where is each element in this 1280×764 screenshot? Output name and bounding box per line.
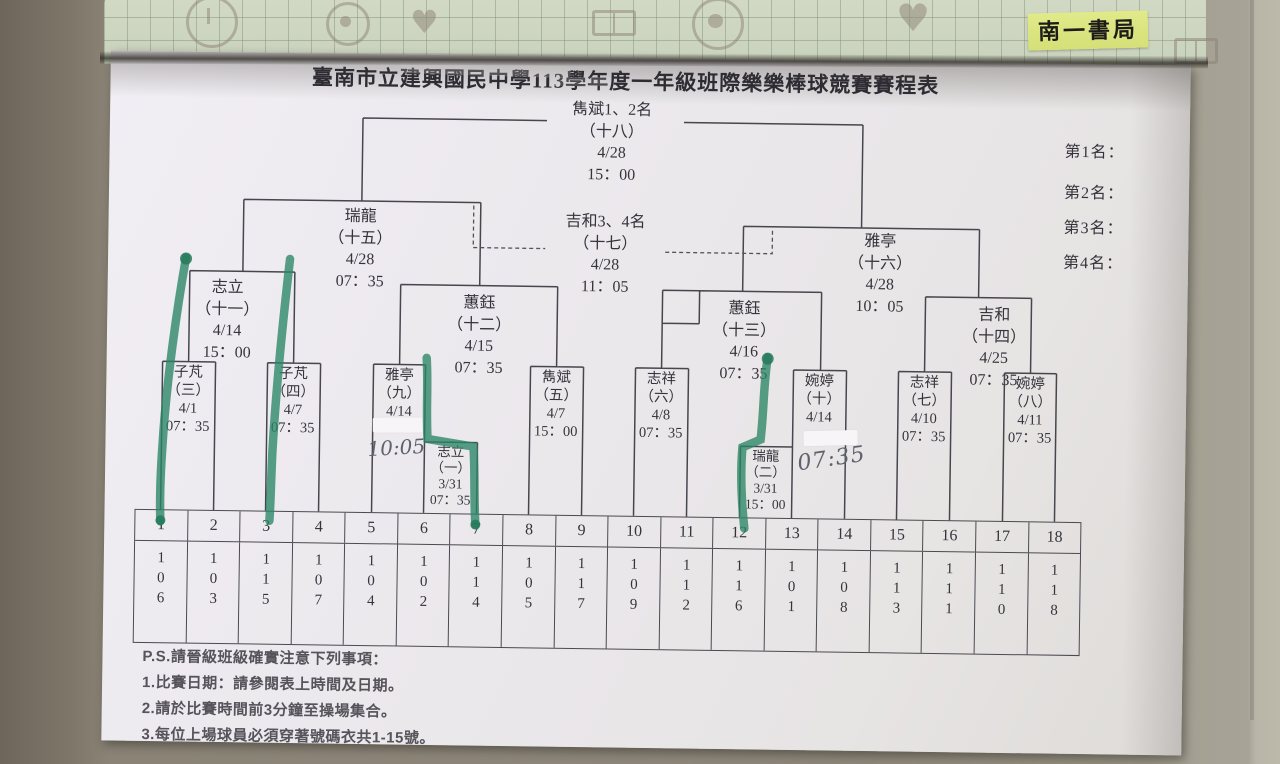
match-time: 07：35 [248, 418, 338, 437]
class-cell: 113 [869, 551, 923, 653]
class-number: 106 [151, 550, 169, 610]
match-time: 15：00 [546, 163, 676, 186]
position-cell: 17 [976, 522, 1029, 553]
position-cell: 11 [661, 517, 714, 548]
whiteout-patch [373, 417, 423, 432]
schedule-paper: 臺南市立建興國民中學113學年度一年級班際樂樂棒球競賽賽程表 雋斌1、2名 （十… [101, 50, 1191, 755]
class-cell: 118 [1027, 553, 1080, 655]
match-date: 4/10 [879, 409, 969, 428]
match-time: 11：05 [545, 275, 665, 298]
team-name: 雋斌 [511, 368, 601, 387]
match-g8: 婉婷 （八） 4/11 07：35 [984, 375, 1075, 448]
match-time: 10：05 [824, 295, 934, 318]
team-name: 雋斌1、2名 [547, 99, 677, 122]
class-cell: 103 [186, 542, 240, 644]
class-cell: 116 [712, 549, 766, 651]
match-sf-left: 瑞龍 （十五） 4/28 07：35 [305, 205, 416, 293]
match-g2: 瑞龍 （二） 3/31 15：00 [723, 448, 809, 513]
match-g7: 志祥 （七） 4/10 07：35 [879, 373, 970, 446]
team-name: 瑞龍 [306, 205, 416, 228]
team-name: 蕙鈺 [694, 298, 794, 321]
class-number: 110 [992, 562, 1010, 622]
match-no: （五） [511, 386, 601, 405]
class-number: 104 [362, 553, 380, 613]
match-time: 07：35 [305, 270, 415, 293]
match-date: 4/28 [825, 273, 935, 296]
match-no: （十七） [545, 232, 665, 255]
position-cell: 4 [293, 512, 346, 543]
match-qf11: 志立 （十一） 4/14 15：00 [177, 276, 278, 363]
position-cell: 18 [1029, 522, 1081, 553]
position-cell: 5 [345, 513, 398, 544]
wall-corner-line [1250, 0, 1254, 720]
match-third-place: 吉和3、4名 （十七） 4/28 11：05 [545, 211, 666, 299]
position-cell: 16 [923, 521, 976, 552]
match-time: 07：35 [616, 424, 706, 443]
notes-block: P.S.請晉級班級確實注意下列事項： 1.比賽日期：請參閱表上時間及日期。 2.… [141, 645, 436, 753]
match-no: （十四） [944, 326, 1044, 349]
position-cell: 12 [713, 518, 766, 549]
position-cell: 13 [766, 519, 819, 550]
class-cell: 111 [922, 552, 976, 654]
match-date: 4/1 [143, 399, 233, 418]
match-g6: 志祥 （六） 4/8 07：35 [616, 370, 707, 443]
position-cell: 10 [608, 516, 661, 547]
class-number: 102 [414, 554, 432, 614]
class-cell: 107 [291, 543, 345, 645]
match-date: 4/25 [944, 347, 1044, 370]
match-date: 4/15 [429, 335, 529, 358]
match-time: 07：35 [408, 492, 493, 509]
glove-doodle-icon: ♥ [896, 2, 930, 34]
team-name: 吉和 [944, 304, 1044, 327]
position-cell: 7 [450, 514, 503, 545]
match-no: （十八） [547, 120, 677, 143]
match-no: （六） [616, 388, 706, 407]
ranking-label-4: 第4名： [1063, 249, 1173, 275]
team-name: 子芃 [143, 363, 233, 382]
class-cell: 106 [134, 541, 188, 643]
note-item-1: 1.比賽日期：請參閱表上時間及日期。 [142, 671, 436, 696]
match-g9: 雅亭 （九） 4/14 [354, 366, 445, 421]
class-number: 115 [257, 552, 275, 612]
match-no: （十三） [694, 319, 794, 342]
team-name: 子芃 [248, 364, 338, 383]
team-name: 志立 [177, 276, 277, 299]
match-no: （二） [723, 464, 808, 481]
team-name: 吉和3、4名 [545, 211, 665, 234]
match-date: 4/8 [616, 406, 706, 425]
match-time: 07：35 [143, 417, 233, 436]
book-doodle-icon [592, 10, 636, 36]
ranking-label-3: 第3名： [1063, 214, 1173, 240]
class-row: 106 103 115 107 104 102 114 105 117 109 … [134, 541, 1080, 655]
team-name: 志祥 [879, 373, 969, 392]
note-item-3: 3.每位上場球員必須穿著號碼衣共1-15號。 [141, 723, 435, 748]
class-cell: 109 [607, 547, 661, 649]
match-no: （九） [354, 384, 444, 403]
class-number: 111 [940, 561, 958, 621]
class-number: 114 [467, 555, 485, 615]
handwritten-time: 10:05 [367, 434, 426, 461]
photo-of-schedule: { "photo": { "bookshop_label": "南一書局", "… [0, 0, 1280, 720]
match-no: （十一） [177, 298, 277, 321]
position-cell: 1 [135, 510, 188, 541]
class-number: 112 [677, 557, 695, 617]
match-date: 4/7 [248, 400, 338, 419]
team-name: 蕙鈺 [429, 292, 529, 315]
match-g5: 雋斌 （五） 4/7 15：00 [511, 368, 602, 441]
position-cell: 8 [503, 515, 556, 546]
match-no: （八） [985, 393, 1075, 412]
class-cell: 115 [239, 542, 293, 644]
clock-hand-icon [207, 8, 210, 24]
class-number: 113 [887, 560, 905, 620]
class-number: 107 [309, 552, 327, 612]
clock-doodle-icon [186, 0, 238, 48]
class-number: 103 [204, 551, 222, 611]
match-final: 雋斌1、2名 （十八） 4/28 15：00 [546, 99, 677, 187]
class-number: 118 [1045, 563, 1063, 623]
match-date: 3/31 [408, 476, 493, 493]
class-number: 101 [782, 559, 800, 619]
match-g10: 婉婷 （十） 4/14 [774, 372, 865, 427]
match-no: （十五） [305, 227, 415, 250]
team-name: 雅亭 [825, 230, 935, 253]
notes-heading: P.S.請晉級班級確實注意下列事項： [142, 645, 436, 670]
position-cell: 9 [556, 516, 609, 547]
class-cell: 114 [449, 545, 503, 647]
ranking-label-2: 第2名： [1064, 179, 1174, 205]
class-cell: 117 [554, 547, 608, 649]
class-number: 105 [519, 555, 537, 615]
match-no: （四） [248, 382, 338, 401]
match-date: 4/16 [694, 341, 794, 364]
class-cell: 101 [764, 550, 818, 652]
class-cell: 110 [975, 553, 1029, 655]
position-cell: 14 [818, 519, 871, 550]
team-name: 志祥 [616, 370, 706, 389]
match-date: 3/31 [723, 480, 808, 497]
team-name: 婉婷 [985, 375, 1075, 394]
match-date: 4/14 [177, 319, 277, 342]
class-cell: 104 [344, 544, 398, 646]
match-time: 15：00 [511, 422, 601, 441]
schedule-table: 1 2 3 4 5 6 7 8 9 10 11 12 13 14 15 16 1… [133, 509, 1082, 656]
soccer-ball-pentagon-icon [708, 14, 723, 28]
match-time: 15：00 [723, 496, 808, 513]
match-sf-right: 雅亭 （十六） 4/28 10：05 [824, 230, 935, 318]
position-cell: 3 [240, 511, 293, 542]
class-cell: 102 [396, 545, 450, 647]
class-cell: 108 [817, 550, 871, 652]
class-cell: 105 [502, 546, 556, 648]
heart-doodle-icon: ♥ [410, 6, 439, 38]
class-number: 109 [624, 557, 642, 617]
match-time: 15：00 [177, 341, 277, 364]
match-no: （十） [774, 390, 864, 409]
note-item-2: 2.請於比賽時間前3分鐘至操場集合。 [142, 697, 436, 722]
bookshop-label: 南一書局 [1028, 10, 1149, 50]
class-number: 117 [572, 556, 590, 616]
class-number: 108 [835, 560, 853, 620]
match-no: （十六） [825, 252, 935, 275]
match-date: 4/11 [985, 411, 1075, 430]
match-g4: 子芃 （四） 4/7 07：35 [248, 364, 339, 437]
position-cell: 6 [398, 514, 451, 545]
ranking-label-1: 第1名： [1064, 138, 1174, 164]
ball-center-icon [340, 16, 351, 27]
match-no: （七） [879, 391, 969, 410]
match-g3: 子芃 （三） 4/1 07：35 [143, 363, 234, 436]
match-date: 4/28 [305, 248, 415, 271]
team-name: 婉婷 [774, 372, 864, 391]
position-cell: 15 [871, 520, 924, 551]
match-time: 07：35 [879, 427, 969, 446]
position-cell: 2 [188, 511, 241, 542]
match-date: 4/7 [511, 404, 601, 423]
class-number: 116 [730, 558, 748, 618]
team-name: 雅亭 [354, 366, 444, 385]
class-cell: 112 [659, 548, 713, 650]
match-no: （十二） [429, 313, 529, 336]
match-date: 4/28 [545, 254, 665, 277]
match-date: 4/14 [774, 408, 864, 427]
match-no: （三） [143, 381, 233, 400]
match-time: 07：35 [984, 429, 1074, 448]
match-date: 4/28 [546, 142, 676, 165]
match-no: （一） [408, 460, 493, 477]
